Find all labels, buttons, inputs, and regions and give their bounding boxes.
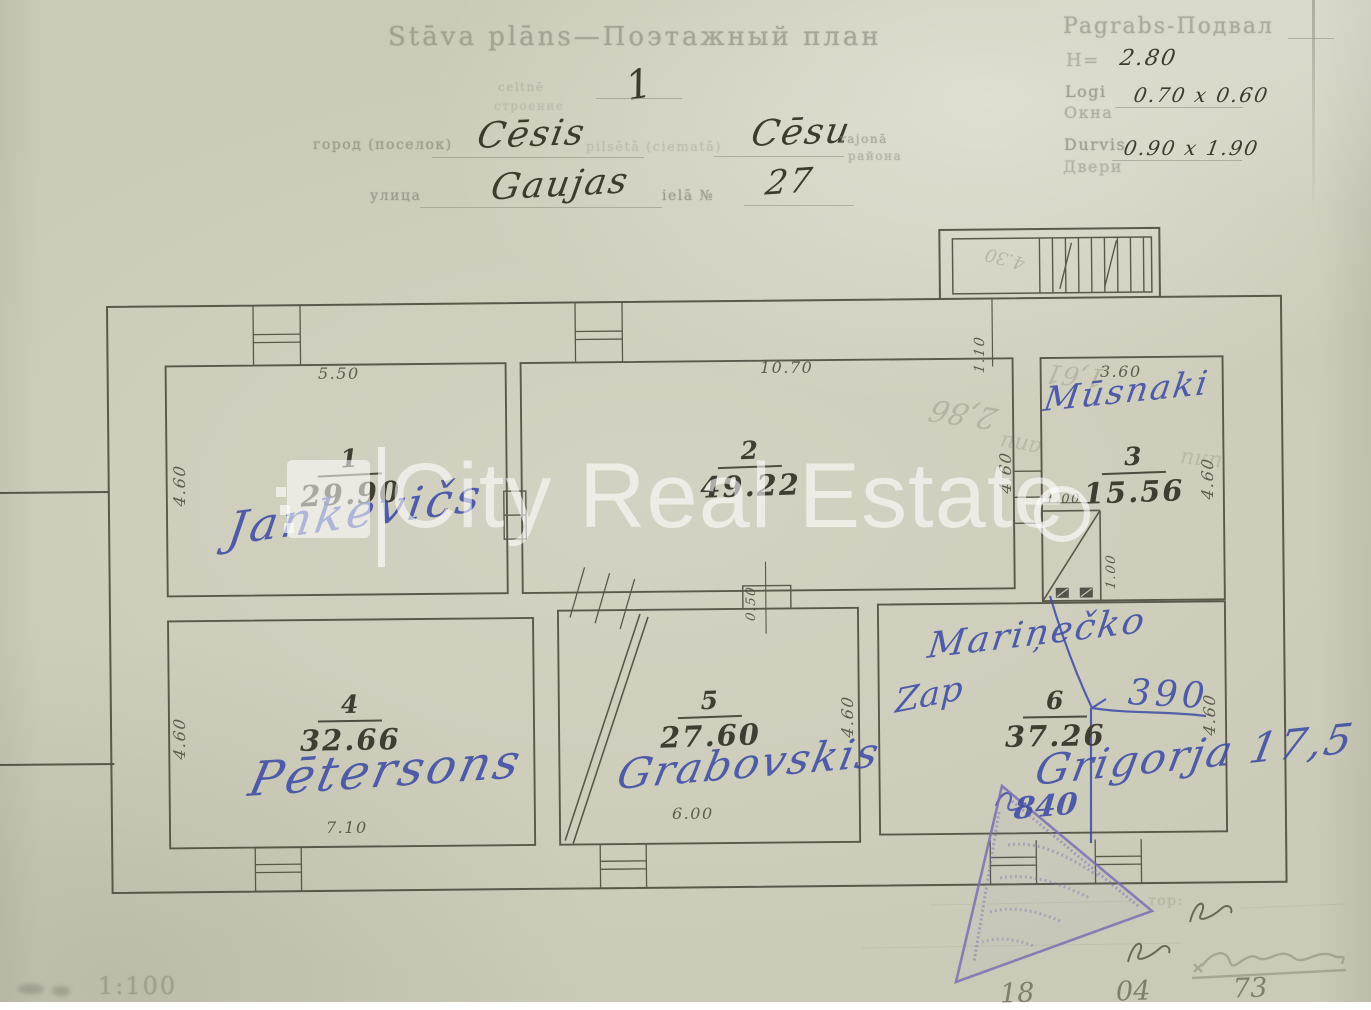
- signature-scribble-light: [1192, 953, 1346, 978]
- dim-room4-left: 4.60: [170, 716, 189, 760]
- landing-dim-line: [992, 299, 993, 367]
- dim-notch: 0.50: [744, 585, 759, 622]
- room-3-area: 15.56: [1076, 473, 1192, 511]
- watermark-text: City Real Estate: [390, 444, 1066, 549]
- dim-room4-bottom: 7.10: [326, 818, 368, 837]
- pencil-note-d: или: [1179, 446, 1224, 475]
- date-year: 73: [1232, 972, 1267, 1004]
- scale-label: 1:100: [98, 972, 177, 1000]
- date-month: 04: [1115, 975, 1150, 1007]
- date-day: 18: [999, 977, 1034, 1009]
- watermark-logo-box: [287, 460, 370, 538]
- room-6-number: 6: [1022, 685, 1087, 718]
- watermark-separator: [378, 447, 385, 567]
- stair-treads: [1039, 237, 1144, 293]
- dim-room1-left: 4.60: [170, 463, 189, 507]
- paper-crease: [1312, 0, 1315, 220]
- boundary-line-upper: [0, 492, 109, 493]
- room-5-number: 5: [677, 685, 742, 719]
- pencil-note-b: 1,61: [1043, 358, 1107, 393]
- watermark-logo-dot: [284, 523, 294, 533]
- watermark-ring: [1034, 486, 1090, 542]
- form-fragment: тор:: [1148, 893, 1184, 909]
- dim-stair-height: 1.00: [1104, 553, 1119, 590]
- blue-note-840: 840: [1012, 787, 1078, 827]
- dim-room1-top: 5.50: [318, 364, 360, 383]
- room-3-number: 3: [1100, 441, 1165, 475]
- dim-landing: 1.10: [972, 335, 988, 374]
- watermark-logo-dot: [280, 505, 290, 515]
- blue-note-390: 390: [1127, 672, 1210, 717]
- floor-plan-sheet: Stāva plāns—Поэтажный план 1 celtnē стро…: [0, 0, 1371, 1002]
- door-hatches: [570, 567, 636, 630]
- windows-top: [253, 302, 623, 366]
- boundary-line-lower: [0, 764, 114, 765]
- room-4-number: 4: [317, 689, 382, 722]
- dim-room5-bottom: 6.00: [672, 804, 714, 823]
- dim-room2-top: 10.70: [760, 358, 813, 377]
- room5-ramp: [563, 614, 650, 844]
- watermark-logo-dot: [276, 487, 286, 497]
- room-3-label: 3 15.56: [1075, 440, 1192, 511]
